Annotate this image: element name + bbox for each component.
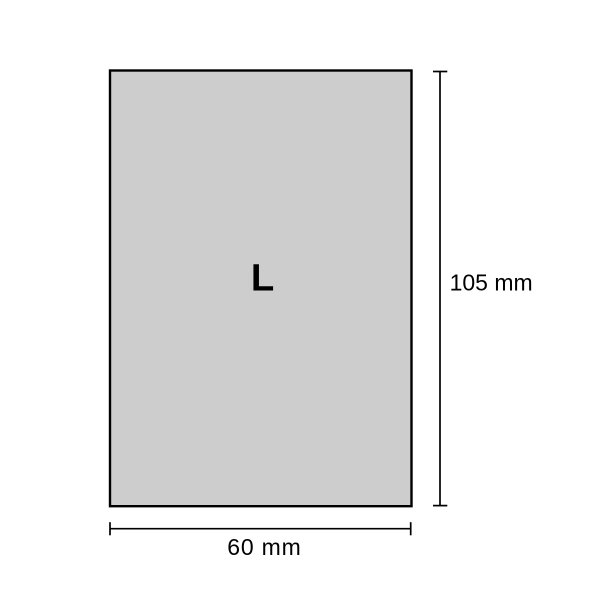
svg-text:60 mm: 60 mm: [227, 534, 301, 560]
svg-text:L: L: [251, 257, 274, 300]
svg-text:105 mm: 105 mm: [450, 270, 533, 296]
